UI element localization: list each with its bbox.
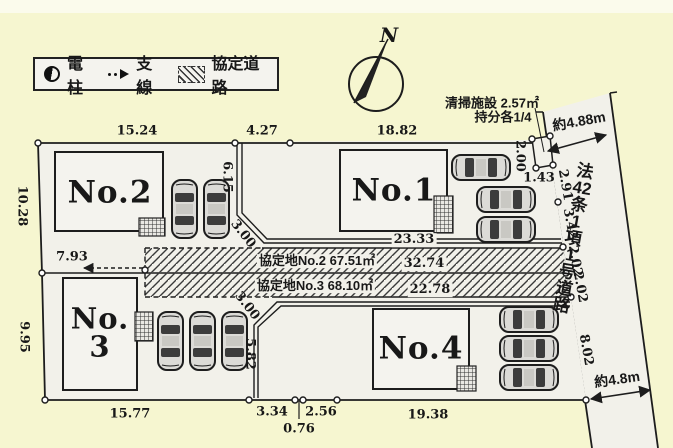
car-icon	[158, 312, 183, 370]
agreement-area-lower-label: 協定地No.3 68.10㎡	[255, 279, 375, 293]
dim-left-no2: 10.28	[15, 186, 30, 227]
dim-no1-corridor: 23.33	[392, 233, 437, 247]
dim-bottom-a: 3.34	[256, 405, 288, 420]
agreement-road-swatch-icon	[178, 66, 205, 83]
utility-pole-icon	[44, 66, 60, 82]
car-icon	[172, 180, 197, 238]
dim-facility-left: 2.00	[513, 140, 528, 172]
porch-no3	[135, 312, 153, 341]
lot-label-no2: No.2	[68, 178, 153, 207]
dim-band-upper: 32.74	[402, 257, 447, 271]
porch-no2	[139, 218, 165, 236]
dim-bottom-no3: 15.77	[110, 407, 151, 422]
dim-bottom-no4: 19.38	[408, 408, 449, 423]
dim-mid-no3: 7.93	[56, 250, 88, 265]
legend-wire-label: 支線	[136, 50, 164, 98]
dim-top-gap: 4.27	[246, 124, 278, 139]
facility-note-line2: 持分各1/4	[474, 107, 531, 126]
car-icon	[452, 155, 510, 180]
car-icon	[190, 312, 215, 370]
porch-no4	[457, 366, 476, 391]
porch-no1	[434, 196, 453, 233]
dim-left-no3: 9.95	[17, 321, 32, 353]
dim-top-no2: 15.24	[117, 124, 158, 139]
agreement-area-upper-label: 協定地No.2 67.51㎡	[257, 254, 377, 268]
car-icon	[477, 217, 535, 242]
legend-road-label: 協定道路	[212, 50, 269, 98]
compass-north-label: N	[380, 23, 398, 47]
dim-facility-bottom: 1.43	[523, 171, 555, 186]
support-wire-icon	[108, 69, 129, 79]
car-icon	[500, 365, 558, 390]
car-icon	[477, 187, 535, 212]
dim-bottom-b: 0.76	[283, 422, 315, 437]
lot-label-no3: No. 3	[71, 305, 129, 360]
lot-label-no4: No.4	[379, 334, 464, 363]
dim-bottom-c: 2.56	[305, 405, 337, 420]
legend-box: 電柱 支線 協定道路	[33, 57, 279, 91]
car-icon	[500, 336, 558, 361]
dim-divider-top-v: 6.15	[220, 161, 235, 193]
dim-band-lower: 22.78	[408, 283, 453, 297]
lot-label-no1: No.1	[352, 176, 437, 205]
dim-top-no1: 18.82	[377, 124, 418, 139]
dim-divider-bottom-v: 5.82	[243, 338, 258, 370]
site-plan-page: 電柱 支線 協定道路 N No.2 No.1 No. 3 No.4 協定地No.…	[0, 0, 673, 448]
legend-pole-label: 電柱	[67, 50, 95, 98]
